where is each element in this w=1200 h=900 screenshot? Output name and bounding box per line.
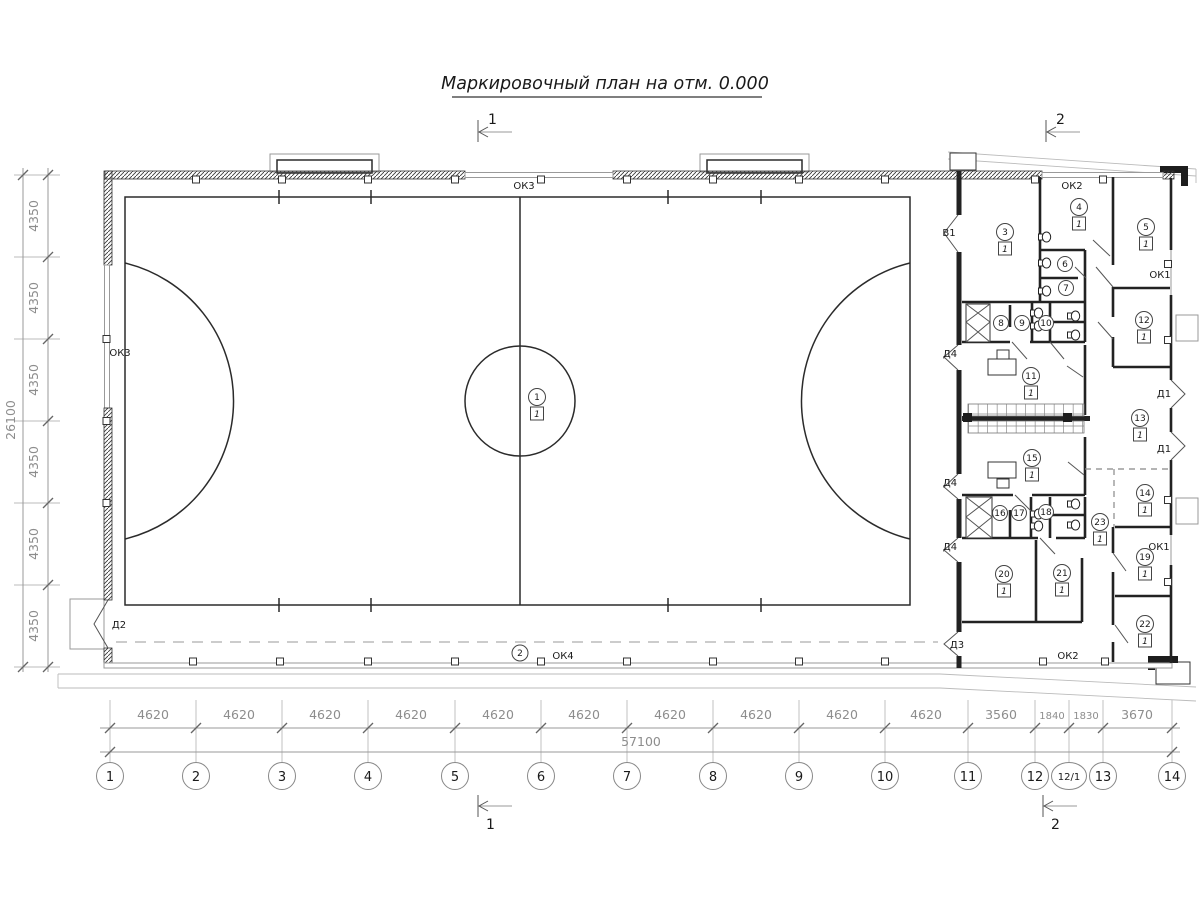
- page-title: Маркировочный план на отм. 0.000: [441, 74, 769, 94]
- svg-text:1: 1: [1059, 586, 1065, 596]
- room-16-marker: 16: [993, 506, 1008, 521]
- svg-text:4620: 4620: [223, 707, 255, 722]
- label-d1-a: Д1: [1157, 389, 1171, 400]
- svg-text:17: 17: [1013, 509, 1024, 519]
- drawing-title: Маркировочный план на отм. 0.000: [441, 74, 769, 97]
- svg-text:4350: 4350: [26, 200, 41, 232]
- svg-text:2: 2: [1051, 817, 1060, 833]
- svg-text:4350: 4350: [26, 282, 41, 314]
- label-d4-b: Д4: [943, 478, 957, 489]
- room-17-marker: 17: [1012, 506, 1027, 521]
- svg-text:1: 1: [1142, 506, 1148, 516]
- room-20-marker: 20 1: [996, 566, 1013, 598]
- svg-text:1: 1: [1137, 431, 1143, 441]
- svg-text:4350: 4350: [26, 446, 41, 478]
- svg-text:18: 18: [1040, 508, 1052, 518]
- room-3-marker: 3 1: [997, 224, 1014, 256]
- svg-text:1: 1: [1142, 637, 1148, 647]
- svg-text:1: 1: [106, 770, 114, 785]
- svg-text:16: 16: [994, 509, 1006, 519]
- svg-text:1: 1: [1097, 535, 1103, 545]
- label-ok4: ОК4: [552, 651, 573, 662]
- external-landing-lower: [1176, 498, 1198, 524]
- section-mark-2-top: 2: [1046, 112, 1080, 142]
- svg-text:1: 1: [534, 410, 540, 420]
- svg-text:1: 1: [534, 393, 540, 403]
- room-15-marker: 15 1: [1024, 450, 1041, 482]
- room-2-marker: 2: [512, 645, 528, 661]
- svg-text:15: 15: [1026, 454, 1037, 464]
- svg-text:10: 10: [1040, 319, 1052, 329]
- svg-text:4620: 4620: [740, 707, 772, 722]
- label-ok3-left: ОК3: [109, 348, 130, 359]
- label-d3: Д3: [950, 640, 964, 651]
- bottom-dimensions: 4620 4620 4620 4620 4620 4620 4620 4620 …: [100, 700, 1180, 762]
- room-22-marker: 22 1: [1137, 616, 1154, 648]
- total-height-dim: 26100: [3, 400, 18, 440]
- room-5-marker: 5 1: [1138, 219, 1155, 251]
- external-landing-upper: [1176, 315, 1198, 341]
- label-v1: В1: [942, 228, 955, 239]
- room-13-marker: 13 1: [1132, 410, 1149, 442]
- svg-text:1: 1: [1076, 220, 1082, 230]
- svg-text:7: 7: [1063, 284, 1069, 294]
- bottom-wall: [104, 663, 1172, 668]
- label-ok3-top: ОК3: [513, 181, 534, 192]
- svg-text:4620: 4620: [910, 707, 942, 722]
- svg-text:8: 8: [709, 770, 717, 785]
- room-9-marker: 9: [1015, 316, 1030, 331]
- svg-text:1: 1: [1143, 240, 1149, 250]
- svg-text:4: 4: [1076, 203, 1082, 213]
- svg-text:9: 9: [795, 770, 803, 785]
- svg-text:1: 1: [488, 112, 497, 128]
- field-right-arc: [801, 263, 910, 539]
- room-18-marker: 18: [1039, 505, 1054, 520]
- svg-text:1: 1: [1001, 587, 1007, 597]
- svg-text:4620: 4620: [568, 707, 600, 722]
- left-dimensions: 4350 4350 4350 4350 4350 4350 26100: [3, 168, 60, 672]
- svg-text:11: 11: [960, 770, 977, 785]
- svg-text:4620: 4620: [395, 707, 427, 722]
- svg-text:1: 1: [1029, 471, 1035, 481]
- label-ok2-top: ОК2: [1061, 181, 1082, 192]
- desk-room-15: [988, 462, 1016, 488]
- svg-text:2: 2: [517, 649, 523, 659]
- svg-text:13: 13: [1095, 770, 1112, 785]
- svg-text:3: 3: [278, 770, 286, 785]
- axis-bubbles: 1 2 3 4 5 6 7 8 9 10 11 12 12/1 13 14: [97, 763, 1186, 790]
- svg-text:1830: 1830: [1073, 711, 1098, 722]
- svg-text:21: 21: [1056, 569, 1067, 579]
- label-d1-b: Д1: [1157, 444, 1171, 455]
- svg-text:4620: 4620: [482, 707, 514, 722]
- room-4-marker: 4 1: [1071, 199, 1088, 231]
- section-mark-2-bottom: 2: [1043, 795, 1077, 833]
- svg-text:1: 1: [1142, 570, 1148, 580]
- drawing-sheet: Маркировочный план на отм. 0.000: [0, 0, 1200, 900]
- svg-text:5: 5: [1143, 223, 1149, 233]
- svg-text:4350: 4350: [26, 364, 41, 396]
- svg-text:10: 10: [877, 770, 894, 785]
- svg-text:12/1: 12/1: [1058, 772, 1080, 783]
- shower-duct-lower: [966, 497, 992, 538]
- svg-text:4620: 4620: [309, 707, 341, 722]
- svg-text:6: 6: [1062, 260, 1068, 270]
- svg-text:3560: 3560: [985, 707, 1017, 722]
- svg-text:13: 13: [1134, 414, 1145, 424]
- svg-text:4620: 4620: [826, 707, 858, 722]
- svg-text:14: 14: [1139, 489, 1151, 499]
- svg-text:8: 8: [998, 319, 1004, 329]
- svg-text:19: 19: [1139, 553, 1151, 563]
- svg-text:1: 1: [1028, 389, 1034, 399]
- svg-text:4620: 4620: [654, 707, 686, 722]
- label-ok2-bottom: ОК2: [1057, 651, 1078, 662]
- svg-text:4: 4: [364, 770, 372, 785]
- room-7-marker: 7: [1059, 281, 1074, 296]
- svg-text:12: 12: [1138, 316, 1149, 326]
- total-width-dim: 57100: [621, 734, 661, 749]
- svg-text:9: 9: [1019, 319, 1025, 329]
- svg-text:2: 2: [192, 770, 200, 785]
- svg-text:20: 20: [998, 570, 1010, 580]
- field-boundary: [125, 197, 910, 605]
- room-12-marker: 12 1: [1136, 312, 1153, 344]
- svg-text:7: 7: [623, 770, 631, 785]
- room-21-marker: 21 1: [1054, 565, 1071, 597]
- svg-text:4350: 4350: [26, 610, 41, 642]
- room-11-marker: 11 1: [1023, 368, 1040, 400]
- room-6-marker: 6: [1058, 257, 1073, 272]
- svg-text:2: 2: [1056, 112, 1065, 128]
- svg-text:5: 5: [451, 770, 459, 785]
- label-d4-a: Д4: [943, 349, 957, 360]
- svg-text:1: 1: [1002, 245, 1008, 255]
- label-ok1-upper: ОК1: [1149, 270, 1170, 281]
- svg-text:1: 1: [1141, 333, 1147, 343]
- svg-text:3: 3: [1002, 228, 1008, 238]
- floor-plan-canvas: Маркировочный план на отм. 0.000: [0, 0, 1200, 900]
- room-10-marker: 10: [1039, 316, 1054, 331]
- svg-text:1840: 1840: [1039, 711, 1064, 722]
- svg-text:6: 6: [537, 770, 545, 785]
- label-d4-c: Д4: [943, 542, 957, 553]
- svg-text:14: 14: [1164, 770, 1181, 785]
- label-d2: Д2: [112, 620, 126, 631]
- room-19-marker: 19 1: [1137, 549, 1154, 581]
- svg-text:1: 1: [486, 817, 495, 833]
- room-23-marker: 23 1: [1092, 514, 1109, 546]
- svg-text:4350: 4350: [26, 528, 41, 560]
- shower-duct-upper: [966, 304, 990, 342]
- section-mark-1-bottom: 1: [478, 795, 512, 833]
- svg-text:23: 23: [1094, 518, 1105, 528]
- door-swings: [94, 215, 1185, 656]
- svg-text:4620: 4620: [137, 707, 169, 722]
- section-mark-1-top: 1: [478, 112, 512, 142]
- svg-text:11: 11: [1025, 372, 1036, 382]
- field-left-arc: [125, 263, 234, 539]
- svg-text:3670: 3670: [1121, 707, 1153, 722]
- svg-text:12: 12: [1027, 770, 1044, 785]
- svg-text:22: 22: [1139, 620, 1150, 630]
- room-1-marker: 1 1: [529, 389, 546, 421]
- desk-room-11: [988, 350, 1016, 375]
- sports-field: [116, 190, 938, 642]
- entrance-porch: [70, 599, 104, 649]
- goal-niches: [270, 154, 809, 173]
- room-14-marker: 14 1: [1137, 485, 1154, 517]
- room-8-marker: 8: [994, 316, 1009, 331]
